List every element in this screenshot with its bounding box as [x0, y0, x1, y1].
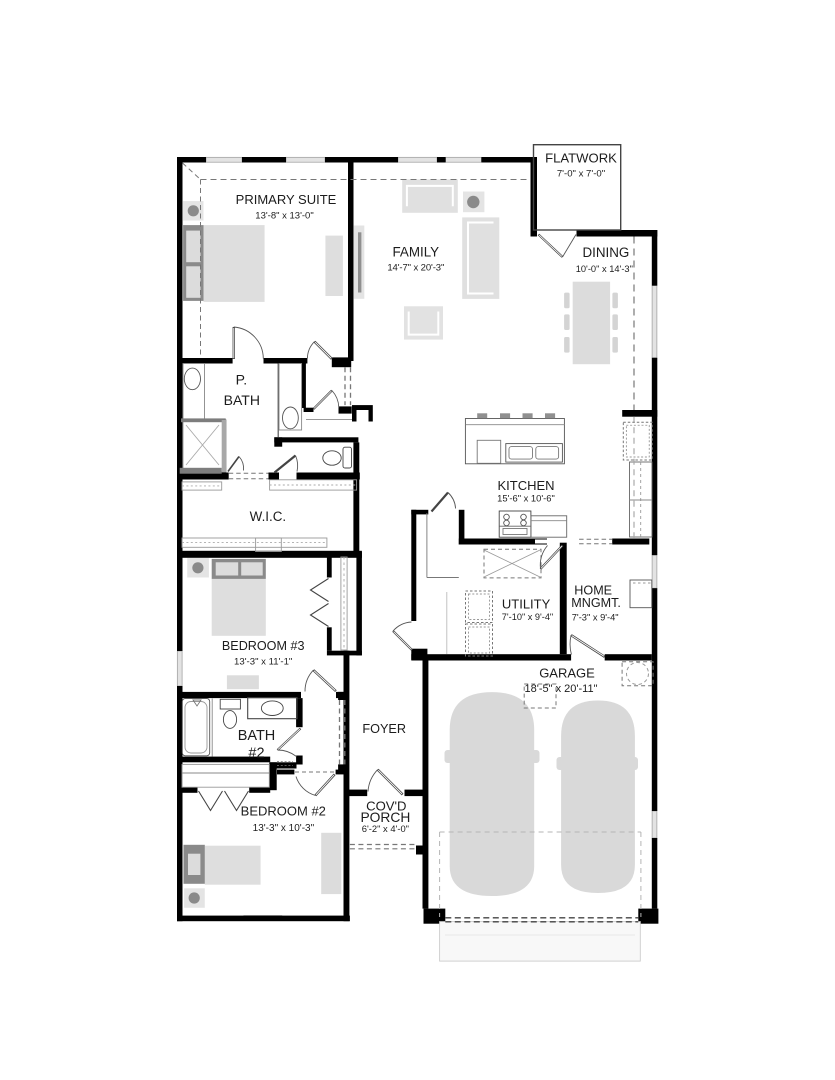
svg-text:BATH: BATH [238, 728, 276, 744]
svg-text:14'-7" x 20'-3": 14'-7" x 20'-3" [387, 263, 444, 274]
svg-text:15'-6" x 10'-6": 15'-6" x 10'-6" [497, 493, 555, 504]
svg-text:6'-2" x 4'-0": 6'-2" x 4'-0" [362, 823, 409, 834]
svg-text:18'-5" x 20'-11": 18'-5" x 20'-11" [525, 683, 598, 695]
svg-text:13'-3" x 10'-3": 13'-3" x 10'-3" [253, 823, 315, 834]
svg-text:GARAGE: GARAGE [539, 666, 595, 681]
svg-text:P.: P. [236, 371, 247, 387]
svg-text:W.I.C.: W.I.C. [250, 509, 286, 524]
svg-text:7'-10" x 9'-4": 7'-10" x 9'-4" [502, 612, 553, 622]
svg-text:FAMILY: FAMILY [392, 245, 439, 260]
svg-text:#2: #2 [248, 746, 264, 762]
svg-text:FOYER: FOYER [362, 722, 406, 736]
svg-text:13'-8" x 13'-0": 13'-8" x 13'-0" [255, 211, 313, 222]
svg-text:10'-0" x 14'-3": 10'-0" x 14'-3" [576, 264, 633, 274]
svg-text:13'-3" x 11'-1": 13'-3" x 11'-1" [234, 657, 292, 668]
svg-text:MNGMT.: MNGMT. [571, 596, 621, 610]
svg-text:UTILITY: UTILITY [502, 597, 551, 612]
svg-text:DINING: DINING [582, 245, 629, 260]
svg-text:7'-0" x 7'-0": 7'-0" x 7'-0" [557, 169, 605, 180]
svg-text:BATH: BATH [224, 392, 260, 408]
svg-text:BEDROOM #3: BEDROOM #3 [222, 639, 305, 653]
svg-text:KITCHEN: KITCHEN [497, 478, 554, 493]
svg-text:FLATWORK: FLATWORK [545, 150, 617, 165]
svg-text:PRIMARY SUITE: PRIMARY SUITE [236, 192, 337, 207]
svg-text:BEDROOM #2: BEDROOM #2 [241, 804, 326, 819]
svg-text:7'-3" x 9'-4": 7'-3" x 9'-4" [572, 613, 619, 623]
